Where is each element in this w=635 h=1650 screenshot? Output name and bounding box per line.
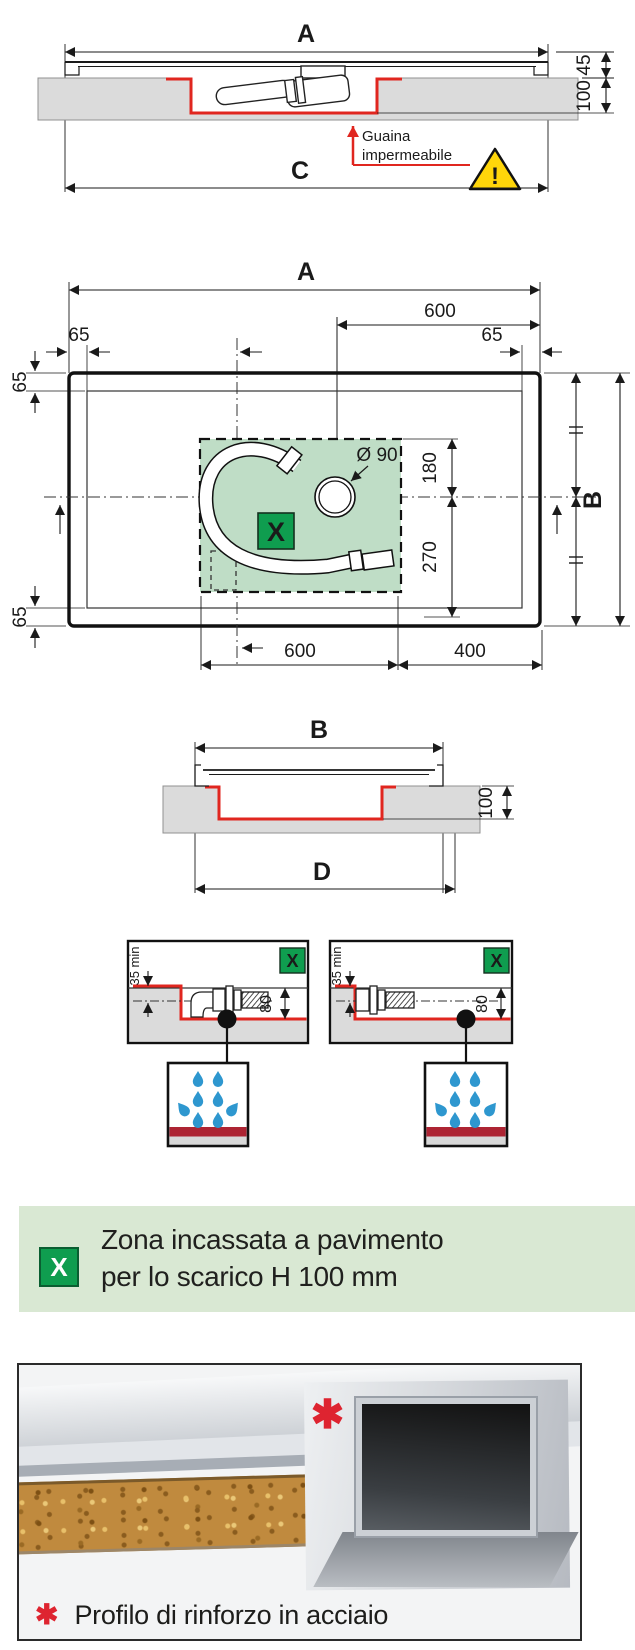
photo-shadow: [313, 1532, 578, 1587]
dim-label-bottom-400: 400: [454, 641, 486, 662]
dim-label-45: 45: [574, 54, 595, 75]
legend-text: Zona incassata a pavimento per lo scaric…: [101, 1222, 443, 1296]
asterisk-marker: ✱: [311, 1392, 345, 1438]
x-zone-letter: X: [267, 517, 285, 547]
caption-asterisk: ✱: [35, 1598, 58, 1631]
dim-label-b-100: 100: [476, 787, 497, 819]
warning-icon: !: [470, 149, 520, 190]
dim-label-c: C: [291, 157, 309, 185]
installation-sheet: A 45 100: [0, 0, 635, 1650]
reinforcement-photo: ✱ ✱ Profilo di rinforzo in acciaio: [17, 1363, 582, 1641]
x-zone-icon-detail-left: X: [280, 948, 305, 973]
detail-left: 35 min 80 X: [127, 941, 308, 1062]
membrane-callout: Guaina impermeabile: [353, 126, 470, 165]
x-zone-icon-legend: X: [39, 1247, 79, 1287]
dim-label-180: 180: [420, 452, 441, 484]
dim-label-plan-b: B: [579, 491, 607, 509]
dim-label-top-600: 600: [424, 301, 456, 322]
photo-steel-tube-opening: [356, 1398, 536, 1536]
drain-point-left: [218, 1010, 237, 1029]
dim-label-left-bottom-65: 65: [10, 606, 31, 627]
dim-label-left-top-65: 65: [10, 371, 31, 392]
floor-recess-b: [219, 785, 382, 820]
membrane-strip-right: [427, 1127, 506, 1137]
legend-banner: X Zona incassata a pavimento per lo scar…: [19, 1206, 635, 1312]
dim-label-d: D: [313, 858, 331, 886]
cross-section-bd: B 100 D: [163, 716, 514, 893]
dim-label-tl-65: 65: [68, 325, 89, 346]
caption-text: Profilo di rinforzo in acciaio: [74, 1600, 388, 1631]
dim-label-100: 100: [574, 80, 595, 112]
dim-label-80-right: 80: [474, 995, 491, 1013]
dim-label-a: A: [297, 20, 315, 48]
dim-label-80-left: 80: [258, 995, 275, 1013]
detail-right: 35 min 80 X: [329, 941, 512, 1062]
tray-profile-b: [195, 765, 443, 786]
dim-label-b: B: [310, 716, 328, 744]
photo-caption: ✱ Profilo di rinforzo in acciaio: [35, 1598, 388, 1631]
plan-view: A 600 65 65 65 65: [10, 258, 630, 670]
dim-label-plan-a: A: [297, 258, 315, 286]
cross-section-ac: A 45 100: [38, 20, 614, 192]
technical-drawing: A 45 100: [0, 0, 635, 1160]
x-zone-icon-detail-right: X: [484, 948, 509, 973]
svg-text:X: X: [490, 951, 502, 971]
water-drops-box-left: [168, 1063, 248, 1146]
water-drops-box-right: [425, 1063, 507, 1146]
legend-line1: Zona incassata a pavimento: [101, 1222, 443, 1259]
membrane-strip-left: [170, 1127, 247, 1137]
dim-label-35min-right: 35 min: [329, 946, 344, 985]
svg-text:X: X: [286, 951, 298, 971]
membrane-note-line2: impermeabile: [362, 147, 452, 164]
legend-line2: per lo scarico H 100 mm: [101, 1259, 443, 1296]
drain-hole: [315, 477, 355, 517]
dim-label-tr-65: 65: [481, 325, 502, 346]
warning-exclamation: !: [491, 163, 499, 190]
membrane-note-line1: Guaina: [362, 128, 411, 145]
dim-label-diameter: Ø 90: [356, 445, 397, 466]
dim-label-bottom-600: 600: [284, 641, 316, 662]
x-zone-letter-legend: X: [50, 1254, 67, 1280]
x-zone-icon: X: [258, 513, 294, 549]
dim-label-270: 270: [420, 541, 441, 573]
drain-point-right: [457, 1010, 476, 1029]
dim-label-35min-left: 35 min: [127, 946, 142, 985]
